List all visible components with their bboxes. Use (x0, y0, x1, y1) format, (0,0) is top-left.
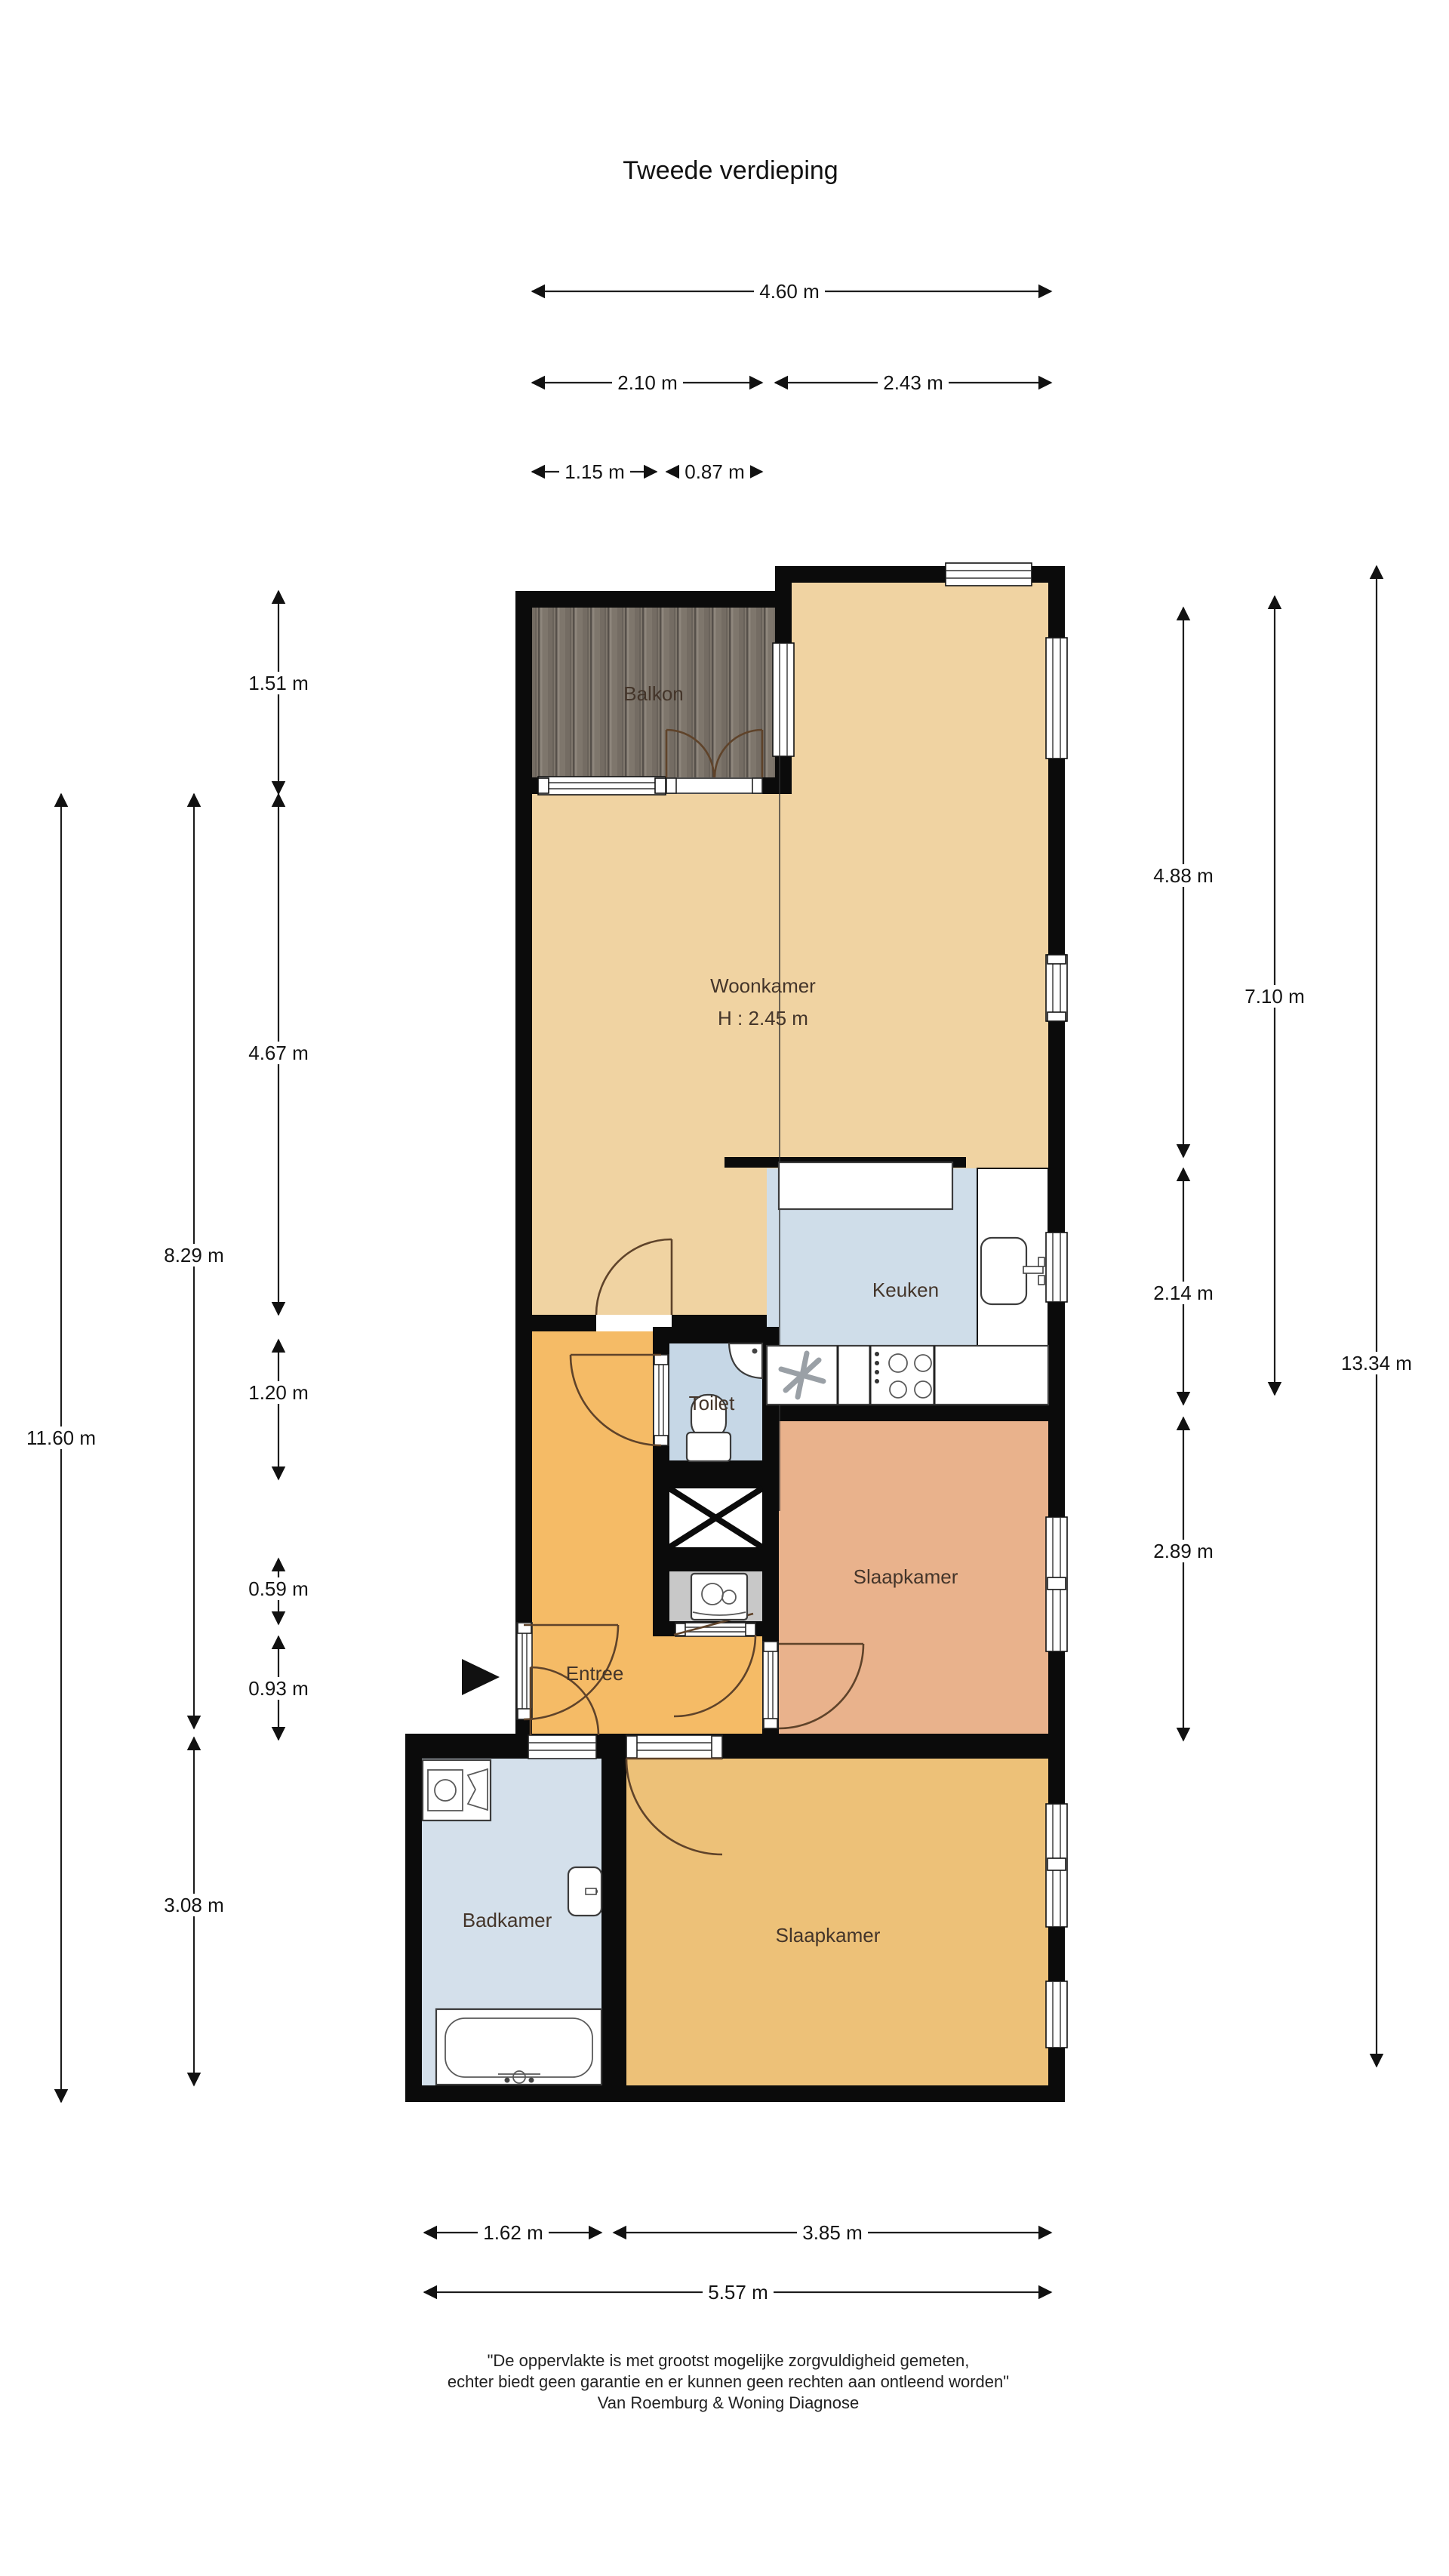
entree-floor-lower (653, 1636, 762, 1734)
badkamer-door-frame (528, 1735, 596, 1759)
dim-right-woonkamer: 4.88 m (1148, 608, 1219, 1157)
svg-text:3.85 m: 3.85 m (802, 2221, 863, 2244)
dim-left-upper-block: 8.29 m (158, 794, 229, 1728)
svg-text:2.43 m: 2.43 m (883, 371, 943, 394)
bathtub-icon (436, 2009, 601, 2085)
dim-top-sub-left: 1.15 m (532, 460, 657, 483)
dim-left-closet: 0.59 m (243, 1559, 314, 1624)
woonkamer-floor-upper (792, 583, 1048, 794)
floorplan-canvas: Tweede verdieping (0, 0, 1449, 2576)
dim-top-total: 4.60 m (532, 280, 1051, 303)
washing-machine-icon (691, 1574, 747, 1620)
dim-top-sub-right: 0.87 m (666, 460, 762, 483)
dim-left-toilet: 1.20 m (243, 1340, 314, 1479)
svg-text:4.67 m: 4.67 m (248, 1042, 309, 1064)
dim-bottom-left: 1.62 m (424, 2221, 601, 2244)
washroom-door-frame (675, 1623, 755, 1636)
window-balkon-band-icon (538, 777, 666, 795)
svg-text:2.89 m: 2.89 m (1153, 1540, 1214, 1562)
window-slaapkamer2-a-icon (1046, 1804, 1067, 1927)
footer-line-2: echter biedt geen garantie en er kunnen … (448, 2372, 1009, 2391)
wall-balkon-bottom-left (515, 777, 540, 794)
kitchen-counter-icon (779, 1162, 952, 1209)
window-woonkamer-icon (1046, 955, 1067, 1021)
slaapkamer1-label: Slaapkamer (854, 1565, 958, 1588)
badkamer-label: Badkamer (463, 1909, 552, 1931)
keuken-label: Keuken (872, 1279, 939, 1301)
wall-lower-bottom (405, 2085, 1065, 2102)
svg-text:1.20 m: 1.20 m (248, 1381, 309, 1404)
balkon-label: Balkon (623, 682, 684, 705)
slaapkamer1-door-frame (763, 1642, 778, 1728)
dim-top-right: 2.43 m (775, 371, 1051, 394)
slaapkamer2-door-frame (626, 1735, 722, 1759)
dim-left-balkon: 1.51 m (243, 591, 314, 794)
svg-text:4.60 m: 4.60 m (759, 280, 820, 303)
page-title: Tweede verdieping (623, 156, 838, 185)
balkon-door-threshold (666, 778, 762, 793)
entrance-arrow-icon (462, 1659, 500, 1695)
dim-right-slaapkamer1: 2.89 m (1148, 1417, 1219, 1740)
svg-text:2.10 m: 2.10 m (617, 371, 678, 394)
svg-text:8.29 m: 8.29 m (164, 1244, 224, 1266)
window-top-icon (946, 563, 1032, 586)
footer-line-1: "De oppervlakte is met grootst mogelijke… (488, 2351, 970, 2370)
svg-text:13.34 m: 13.34 m (1341, 1352, 1412, 1374)
svg-text:7.10 m: 7.10 m (1244, 985, 1305, 1008)
badkamer-sink-icon (568, 1867, 601, 1916)
slaapkamer2-label: Slaapkamer (776, 1924, 881, 1947)
dim-left-washroom: 0.93 m (243, 1636, 314, 1740)
badkamer-washer-icon (423, 1760, 491, 1820)
woonkamer-label: Woonkamer (710, 974, 816, 997)
floorplan-page: Tweede verdieping (0, 0, 1449, 2576)
dim-left-woonkamer: 4.67 m (243, 794, 314, 1315)
dim-right-total: 13.34 m (1335, 566, 1418, 2067)
wall-keuken-slaapkamer1 (762, 1405, 1048, 1421)
svg-text:0.59 m: 0.59 m (248, 1577, 309, 1600)
dim-bottom-total: 5.57 m (424, 2281, 1051, 2304)
svg-text:5.57 m: 5.57 m (708, 2281, 768, 2304)
dim-right-keuken: 2.14 m (1148, 1168, 1219, 1405)
svg-text:0.93 m: 0.93 m (248, 1677, 309, 1700)
window-slaapkamer2-b-icon (1046, 1981, 1067, 2048)
svg-text:2.14 m: 2.14 m (1153, 1282, 1214, 1304)
wall-lower-left (405, 1734, 422, 2102)
svg-text:1.62 m: 1.62 m (483, 2221, 543, 2244)
woonkamer-floor-lower (532, 1168, 767, 1315)
wall-left-main (515, 777, 532, 1734)
footer-line-3: Van Roemburg & Woning Diagnose (598, 2393, 860, 2412)
svg-text:0.87 m: 0.87 m (685, 460, 745, 483)
entree-label: Entree (566, 1662, 624, 1685)
dim-left-lower-block: 3.08 m (158, 1737, 229, 2085)
window-slaapkamer1-icon (1046, 1517, 1067, 1651)
svg-text:4.88 m: 4.88 m (1153, 864, 1214, 887)
wall-woonkamer-entree-a (515, 1315, 596, 1331)
wall-balkon-top (515, 591, 792, 608)
toilet-label: Toilet (689, 1392, 735, 1414)
wall-lower-top (405, 1734, 1065, 1759)
dim-right-mid: 7.10 m (1239, 596, 1310, 1395)
dim-top-left: 2.10 m (532, 371, 762, 394)
wall-balkon-left (515, 591, 532, 794)
window-woonkamer-upper-icon (1046, 638, 1067, 759)
svg-text:3.08 m: 3.08 m (164, 1894, 224, 1916)
dim-left-total: 11.60 m (20, 794, 103, 2102)
svg-text:11.60 m: 11.60 m (26, 1426, 96, 1449)
svg-text:1.51 m: 1.51 m (248, 672, 309, 694)
toilet-door-frame (654, 1355, 669, 1445)
slaapkamer2-floor (626, 1759, 1048, 2085)
dim-bottom-right: 3.85 m (614, 2221, 1051, 2244)
wall-balkon-bottom-right (762, 777, 792, 794)
window-keuken-icon (1046, 1233, 1067, 1302)
woonkamer-height-label: H : 2.45 m (718, 1007, 808, 1029)
wall-badkamer-slaapkamer2 (601, 1759, 626, 2085)
svg-text:1.15 m: 1.15 m (565, 460, 625, 483)
footer-disclaimer: "De oppervlakte is met grootst mogelijke… (448, 2351, 1009, 2412)
